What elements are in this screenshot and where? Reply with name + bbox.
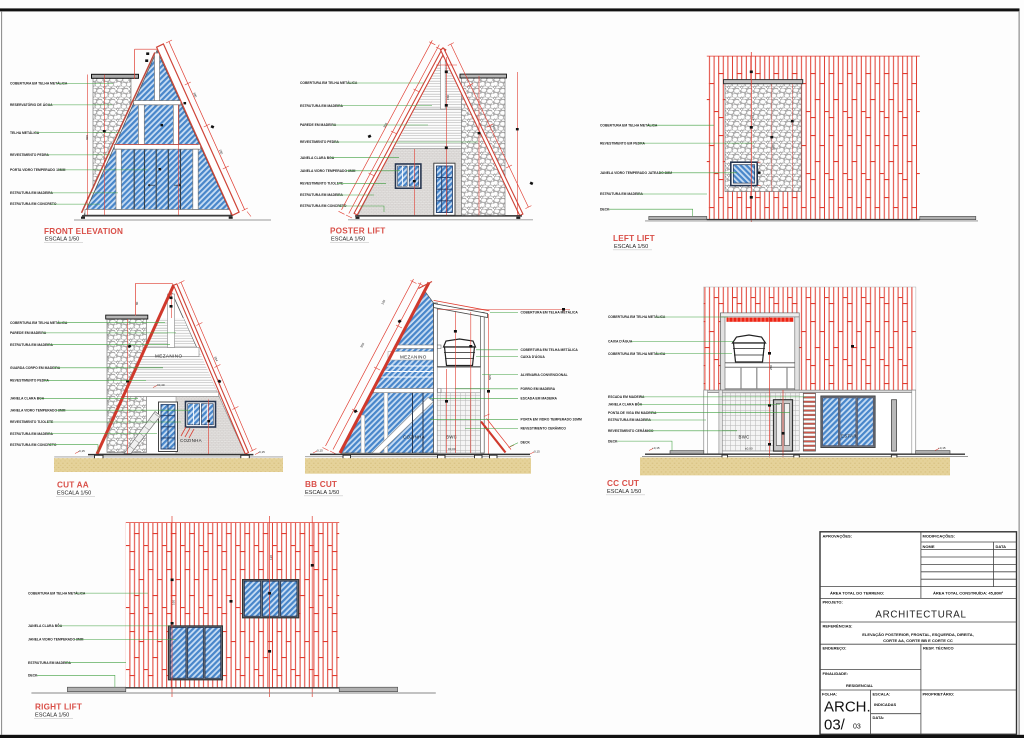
svg-text:±0,40: ±0,40 [157,383,165,387]
svg-text:REVESTIMENTO CERÂMICO: REVESTIMENTO CERÂMICO [521,426,567,431]
svg-text:FOLHA:: FOLHA: [822,692,837,697]
svg-text:JANELA CLARA BÔA: JANELA CLARA BÔA [28,623,63,628]
svg-text:PORTA VIDRO TEMPERADO 10MM: PORTA VIDRO TEMPERADO 10MM [10,168,66,172]
svg-text:ESTAR: ESTAR [841,434,857,439]
svg-text:REVESTIMENTO CERÂMICO: REVESTIMENTO CERÂMICO [608,428,654,433]
svg-text:COBERTURA EM TELHA METÁLICA: COBERTURA EM TELHA METÁLICA [10,320,68,325]
svg-text:ARCHITECTURAL: ARCHITECTURAL [875,610,966,621]
svg-text:+0,15: +0,15 [938,446,946,450]
svg-text:ESCALA 1/50: ESCALA 1/50 [305,490,339,496]
svg-text:03/: 03/ [824,717,846,734]
svg-text:MEZANINO: MEZANINO [155,354,182,359]
svg-text:COZINHA: COZINHA [403,435,425,440]
svg-text:505: 505 [488,375,492,380]
svg-text:+0,15: +0,15 [652,446,660,450]
svg-text:COBERTURA EM TELHA METÁLICA: COBERTURA EM TELHA METÁLICA [521,347,579,352]
svg-text:COBERTURA EM TELHA METÁLICA: COBERTURA EM TELHA METÁLICA [10,81,68,86]
svg-text:COZINHA: COZINHA [180,438,202,443]
svg-text:COBERTURA EM TELHA METÁLICA: COBERTURA EM TELHA METÁLICA [608,314,666,319]
svg-text:JANELA CLARA BOA: JANELA CLARA BOA [300,156,335,160]
svg-text:PAREDE EM MADEIRA: PAREDE EM MADEIRA [300,123,337,127]
svg-text:03: 03 [853,724,861,731]
svg-text:±0,00: ±0,00 [448,447,456,451]
svg-text:ESCADA EM MADEIRA: ESCADA EM MADEIRA [521,397,558,401]
svg-text:ESTRUTURA EM MADEIRA: ESTRUTURA EM MADEIRA [10,191,54,195]
svg-text:RESIDENCIAL: RESIDENCIAL [846,683,874,688]
svg-text:ELEVAÇÃO POSTERIOR, FRONTAL, E: ELEVAÇÃO POSTERIOR, FRONTAL, ESQUERDA, D… [862,632,974,637]
svg-text:MODIFICAÇÕES:: MODIFICAÇÕES: [923,534,955,539]
svg-text:DECK: DECK [521,441,531,445]
svg-text:COBERTURA EM TELHA METÁLICA: COBERTURA EM TELHA METÁLICA [521,310,579,315]
svg-text:REFERÊNCIAS:: REFERÊNCIAS: [823,624,853,629]
svg-text:ESCALA 1/50: ESCALA 1/50 [331,237,365,243]
svg-text:270: 270 [751,115,755,120]
svg-text:600: 600 [85,135,89,140]
svg-text:POSTER LIFT: POSTER LIFT [330,227,385,236]
svg-text:CORTE AA, CORTE BB E CORTE CC: CORTE AA, CORTE BB E CORTE CC [883,638,953,643]
svg-text:COBERTURA EM TELHA METÁLICA: COBERTURA EM TELHA METÁLICA [28,590,86,595]
svg-text:ESCALA 1/50: ESCALA 1/50 [35,713,69,719]
svg-text:±0,00: ±0,00 [745,447,753,451]
svg-text:-0,15: -0,15 [533,450,540,454]
svg-text:FINALIDADE:: FINALIDADE: [823,671,849,676]
svg-text:ÁREA TOTAL CONSTRUÍDA: 45,80M²: ÁREA TOTAL CONSTRUÍDA: 45,80M² [933,591,1004,596]
svg-text:NOME: NOME [923,544,935,549]
svg-text:-0,15: -0,15 [316,449,323,453]
svg-text:ESCADA EM MADEIRA: ESCADA EM MADEIRA [608,395,645,399]
svg-text:ÁREA TOTAL DO TERRENO:: ÁREA TOTAL DO TERRENO: [830,591,884,596]
svg-text:DATA: DATA [996,544,1007,549]
svg-text:TELHA METÁLICA: TELHA METÁLICA [10,130,40,135]
svg-text:RIGHT LIFT: RIGHT LIFT [35,703,82,712]
svg-text:ALVENARIA CONVENCIONAL: ALVENARIA CONVENCIONAL [521,373,568,377]
svg-text:ARCH.: ARCH. [824,699,871,716]
svg-text:ENDEREÇO:: ENDEREÇO: [823,646,847,651]
svg-text:ESCALA:: ESCALA: [873,692,891,697]
svg-text:250: 250 [769,365,773,370]
svg-text:INDICADAS: INDICADAS [874,702,897,707]
svg-text:160: 160 [172,600,176,605]
svg-text:DECK: DECK [28,674,38,678]
svg-text:CC CUT: CC CUT [607,479,639,488]
svg-text:CUT AA: CUT AA [57,481,89,490]
svg-text:JANELA CLARA BÔA: JANELA CLARA BÔA [608,402,643,407]
svg-text:PROPRIETÁRIO:: PROPRIETÁRIO: [923,692,955,697]
svg-text:BB CUT: BB CUT [305,480,337,489]
svg-text:ESCALA 1/50: ESCALA 1/50 [57,491,91,497]
svg-text:-0,15: -0,15 [258,450,265,454]
svg-text:LEFT LIFT: LEFT LIFT [613,234,655,243]
svg-text:-0,15: -0,15 [78,449,85,453]
svg-text:PORTA EM VIDRO TEMPERADO 10MM: PORTA EM VIDRO TEMPERADO 10MM [521,418,583,422]
svg-text:CAIXA D'ÁGUA: CAIXA D'ÁGUA [608,339,633,344]
svg-text:160: 160 [772,145,776,150]
svg-text:150: 150 [446,95,450,100]
svg-text:RESP. TÉCNICO: RESP. TÉCNICO [923,646,954,651]
svg-text:DECK: DECK [600,207,610,211]
svg-text:REVESTIMENTO PEDRA: REVESTIMENTO PEDRA [300,140,340,144]
svg-text:120: 120 [269,555,273,560]
svg-text:REVESTIMENTO PEDRA: REVESTIMENTO PEDRA [10,153,50,157]
svg-text:ESCALA 1/50: ESCALA 1/50 [607,489,641,495]
svg-text:BWC: BWC [739,435,750,440]
svg-text:ESCALA 1/50: ESCALA 1/50 [614,244,648,250]
svg-text:ESCALA 1/50: ESCALA 1/50 [45,237,79,243]
svg-text:MEZANINO: MEZANINO [400,355,427,360]
svg-text:CAIXA D'ÁGUA: CAIXA D'ÁGUA [521,354,546,359]
svg-text:PAREDE EM MADEIRA: PAREDE EM MADEIRA [10,331,47,335]
svg-text:COBERTURA EM TELHA METÁLICA: COBERTURA EM TELHA METÁLICA [608,351,666,356]
svg-text:RESERVATÓRIO DE ÁGUA: RESERVATÓRIO DE ÁGUA [10,102,53,107]
svg-text:FORRO EM MADEIRA: FORRO EM MADEIRA [521,387,556,391]
svg-text:COBERTURA EM TELHA METÁLICA: COBERTURA EM TELHA METÁLICA [300,80,358,85]
svg-text:FRONT ELEVATION: FRONT ELEVATION [44,227,123,236]
svg-text:PONTA DE VIGA EM MADEIRA: PONTA DE VIGA EM MADEIRA [608,411,657,415]
svg-text:PROJETO:: PROJETO: [823,600,843,605]
svg-text:DECK: DECK [608,439,618,443]
svg-text:ESTRUTURA EM CONCRETO: ESTRUTURA EM CONCRETO [10,202,57,206]
svg-text:REVESTIMENTO PEDRA: REVESTIMENTO PEDRA [10,379,50,383]
svg-text:DATA:: DATA: [873,715,885,720]
svg-text:APROVAÇÕES:: APROVAÇÕES: [823,534,852,539]
svg-text:80: 80 [135,301,139,305]
svg-text:COBERTURA EM TELHA METÁLICA: COBERTURA EM TELHA METÁLICA [600,122,658,127]
